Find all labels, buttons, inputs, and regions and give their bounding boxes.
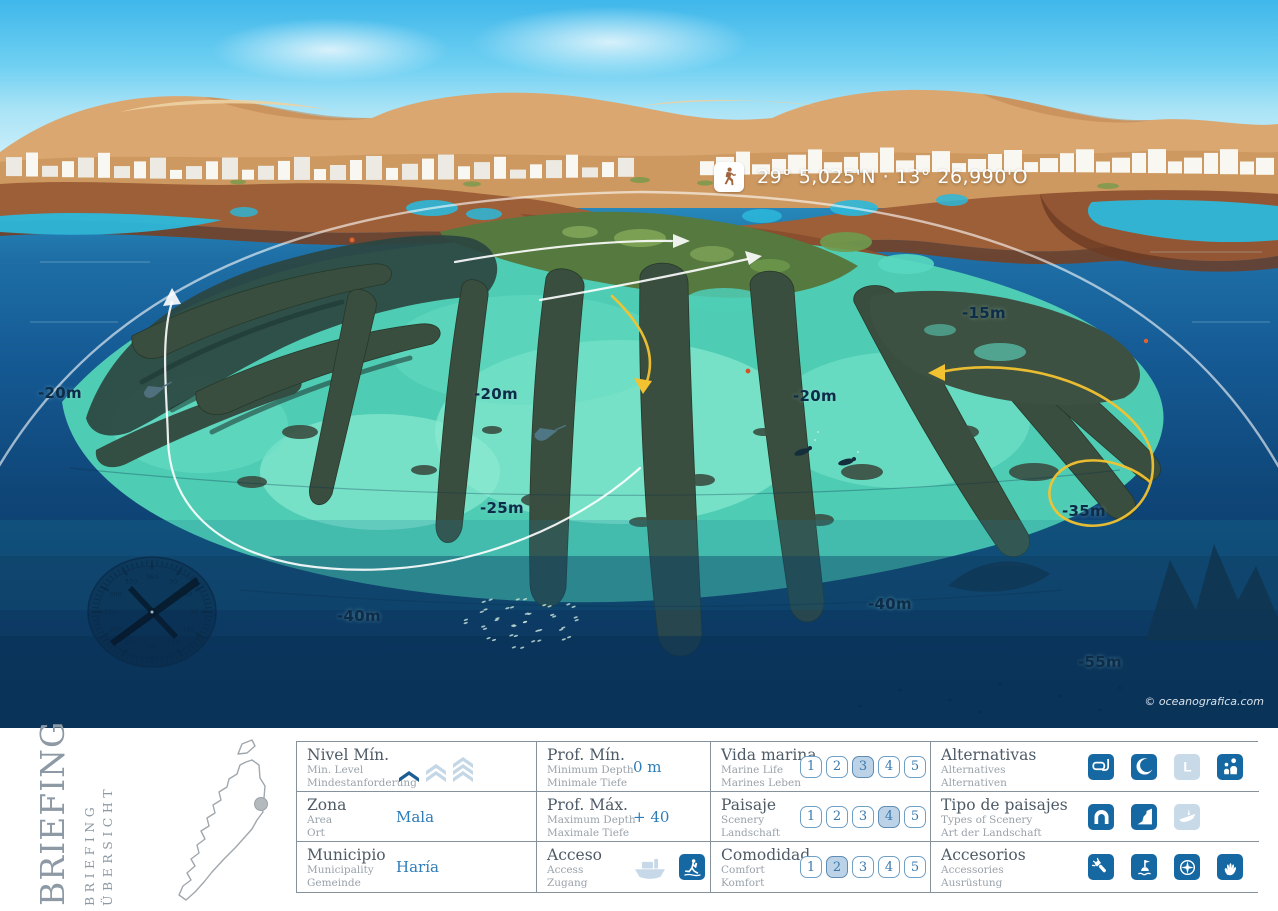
chevron-level-3-icon	[452, 754, 474, 783]
icons-accesorios	[1088, 854, 1243, 880]
value-zona: Mala	[396, 808, 434, 826]
icons-tipo-de-paisajes	[1088, 804, 1200, 830]
svg-text:330: 330	[125, 578, 137, 586]
svg-text:L: L	[1183, 759, 1191, 774]
rating-chip-3: 3	[852, 806, 874, 828]
cell-prof-max: Prof. Máx. Maximum Depth Maximale Tiefe+…	[537, 792, 711, 842]
shore-entry-icon	[679, 854, 705, 880]
value-prof-min: 0 m	[633, 758, 662, 776]
chevron-level-2-icon	[425, 761, 447, 783]
cell-nivel-min: Nivel Mín. Min. Level Mindestanforderung	[297, 742, 537, 792]
cell-alternativas: Alternativas Alternatives AlternativenL	[931, 742, 1259, 792]
depth-label: -20m	[793, 387, 837, 405]
icons-acceso	[627, 849, 705, 885]
chevron-level-1-icon	[398, 768, 420, 783]
value-municipio: Haría	[396, 858, 439, 876]
boat-icon	[627, 849, 673, 885]
dive-site-briefing-poster: 360306090120150180210240270300330 29° 5,…	[0, 0, 1278, 911]
family-icon	[1217, 754, 1243, 780]
rating-vida-marina: 12345	[800, 756, 926, 778]
snorkel-icon	[1088, 754, 1114, 780]
depth-label: -20m	[474, 385, 518, 403]
svg-text:270: 270	[104, 608, 116, 616]
briefing-title-en: BRIEFING	[84, 736, 97, 906]
rating-chip-2: 2	[826, 806, 848, 828]
svg-text:300: 300	[109, 591, 121, 599]
cell-vida-marina: Vida marina Marine Life Marines Leben123…	[711, 742, 931, 792]
depth-label: -40m	[337, 607, 381, 625]
rating-chip-4: 4	[878, 756, 900, 778]
svg-text:90: 90	[190, 608, 198, 616]
rating-chip-1: 1	[800, 806, 822, 828]
rating-chip-2: 2	[826, 756, 848, 778]
rating-chip-5: 5	[904, 756, 926, 778]
svg-text:360: 360	[146, 573, 158, 581]
rating-chip-4: 4	[878, 856, 900, 878]
cell-municipio: Municipio Municipality GemeindeHaría	[297, 842, 537, 892]
rating-chip-4: 4	[878, 806, 900, 828]
terrain-artwork: 360306090120150180210240270300330	[0, 0, 1278, 728]
sublabel-en: Maximum Depth	[547, 814, 710, 827]
briefing-table: Nivel Mín. Min. Level Mindestanforderung…	[296, 741, 1258, 893]
icons-alternativas: L	[1088, 754, 1243, 780]
svg-text:120: 120	[182, 626, 194, 634]
rating-chip-5: 5	[904, 856, 926, 878]
sublabel-en: Minimum Depth	[547, 764, 710, 777]
svg-text:240: 240	[109, 626, 121, 634]
rating-comodidad: 12345	[800, 856, 926, 878]
compass-rose: 360306090120150180210240270300330	[88, 557, 216, 667]
svg-text:150: 150	[167, 638, 179, 646]
label-prof-min: Prof. Mín.	[547, 747, 710, 764]
learner-icon: L	[1174, 754, 1200, 780]
cell-comodidad: Comodidad Comfort Komfort12345	[711, 842, 931, 892]
dive-site-location-dot	[255, 798, 268, 811]
sublabel-de: Gemeinde	[307, 877, 536, 890]
depth-label: -35m	[1062, 502, 1106, 520]
rating-chip-3: 3	[852, 756, 874, 778]
islet-outline	[238, 740, 255, 754]
rating-chip-5: 5	[904, 806, 926, 828]
depth-label: -15m	[962, 304, 1006, 322]
night-dive-icon	[1131, 754, 1157, 780]
wreck-icon	[1174, 804, 1200, 830]
svg-text:180: 180	[146, 643, 158, 651]
island-outline	[179, 760, 265, 900]
cell-prof-min: Prof. Mín. Minimum Depth Minimale Tiefe0…	[537, 742, 711, 792]
rating-chip-3: 3	[852, 856, 874, 878]
value-prof-max: + 40	[633, 808, 669, 826]
cell-tipo-de-paisajes: Tipo de paisajes Types of Scenery Art de…	[931, 792, 1259, 842]
rating-paisaje: 12345	[800, 806, 926, 828]
level-indicator	[398, 754, 474, 783]
sublabel-de: Landschaft	[721, 827, 930, 840]
briefing-panel: BRIEFING BRIEFING ÜBERSICHT Nivel Mín. M…	[0, 728, 1278, 911]
sublabel-de: Maximale Tiefe	[547, 827, 710, 840]
label-prof-max: Prof. Máx.	[547, 797, 710, 814]
briefing-title: BRIEFING	[36, 732, 69, 906]
sublabel-de: Ort	[307, 827, 536, 840]
depth-label: -25m	[480, 499, 524, 517]
marker-buoy-icon	[1131, 854, 1157, 880]
depth-label: -55m	[1078, 653, 1122, 671]
cell-acceso: Acceso Access Zugang	[537, 842, 711, 892]
rating-chip-1: 1	[800, 756, 822, 778]
depth-label: -20m	[38, 384, 82, 402]
svg-text:30: 30	[169, 578, 177, 586]
credit-text: © oceanografica.com	[1040, 695, 1264, 708]
sublabel-de: Marines Leben	[721, 777, 930, 790]
depth-label: -40m	[868, 595, 912, 613]
cell-zona: Zona Area OrtMala	[297, 792, 537, 842]
gps-coordinates: 29° 5,025'N · 13° 26,990'O	[714, 162, 1028, 192]
wall-icon	[1131, 804, 1157, 830]
gloves-icon	[1217, 854, 1243, 880]
torch-icon	[1088, 854, 1114, 880]
coordinates-text: 29° 5,025'N · 13° 26,990'O	[757, 166, 1028, 188]
rating-chip-2: 2	[826, 856, 848, 878]
svg-text:210: 210	[125, 638, 137, 646]
island-locator-map	[164, 734, 298, 906]
compass-icon	[1174, 854, 1200, 880]
dive-site-illustration: 360306090120150180210240270300330 29° 5,…	[0, 0, 1278, 728]
cell-accesorios: Accesorios Accessories Ausrüstung	[931, 842, 1259, 892]
arch-icon	[1088, 804, 1114, 830]
rating-chip-1: 1	[800, 856, 822, 878]
cell-paisaje: Paisaje Scenery Landschaft12345	[711, 792, 931, 842]
sublabel-de: Komfort	[721, 877, 930, 890]
briefing-title-de: ÜBERSICHT	[102, 736, 115, 906]
sublabel-de: Minimale Tiefe	[547, 777, 710, 790]
hiker-icon	[714, 162, 744, 192]
